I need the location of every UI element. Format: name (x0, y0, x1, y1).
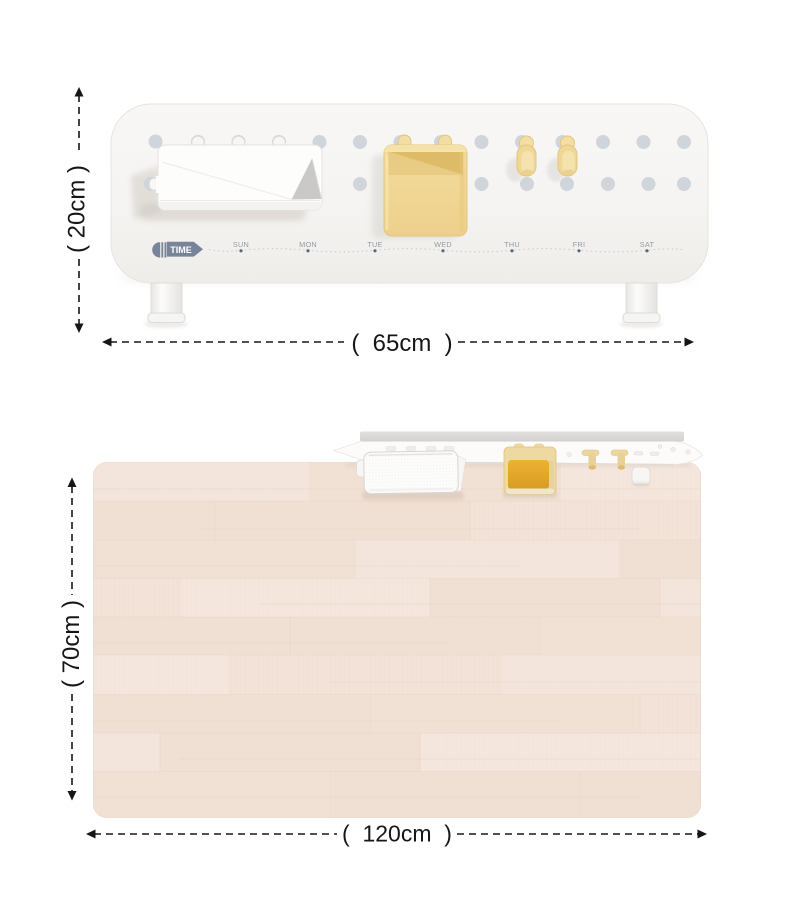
svg-text:( 70cm ): ( 70cm ) (58, 600, 85, 688)
svg-text:( 65cm ): ( 65cm ) (351, 330, 452, 357)
svg-text:FRI: FRI (573, 240, 586, 249)
svg-text:TIME: TIME (170, 245, 192, 256)
svg-text:( 120cm ): ( 120cm ) (342, 821, 452, 847)
svg-text:( 20cm ): ( 20cm ) (64, 165, 91, 253)
svg-text:MON: MON (299, 240, 317, 249)
svg-text:SAT: SAT (640, 240, 655, 249)
svg-text:TUE: TUE (367, 240, 382, 249)
svg-text:THU: THU (504, 240, 520, 249)
svg-text:WED: WED (434, 240, 452, 249)
svg-text:SUN: SUN (233, 240, 249, 249)
